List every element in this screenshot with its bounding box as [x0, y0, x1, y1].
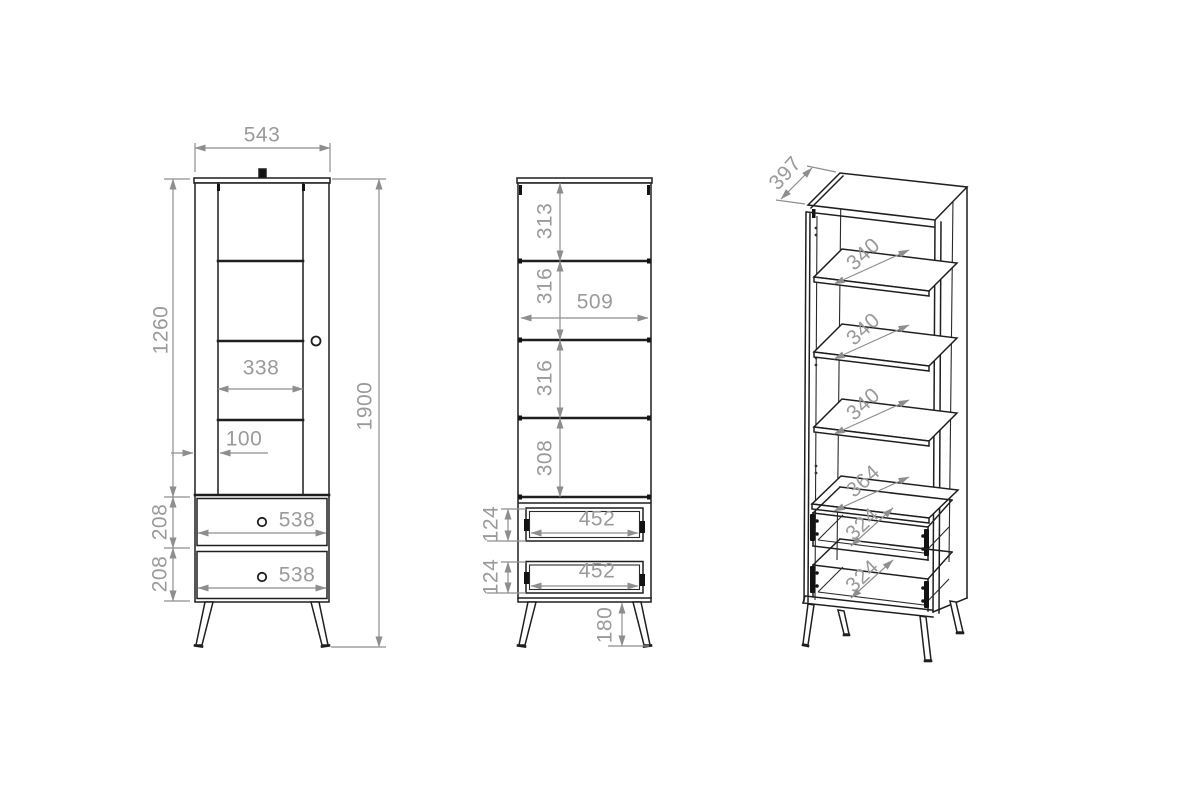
- wall-bracket: [259, 169, 266, 178]
- dim-label-124b: 124: [480, 559, 503, 596]
- dim-label-316a: 316: [534, 268, 557, 305]
- dim-label-208b: 208: [149, 556, 172, 593]
- dim-door-height: 1260: [150, 179, 190, 497]
- dim-label-313: 313: [534, 203, 557, 240]
- hinge-plate-left: [519, 185, 522, 195]
- dim-label-452a: 452: [579, 508, 616, 531]
- right-bottom-edge: [933, 598, 967, 612]
- leg-foot-left: [518, 646, 525, 647]
- drawer-slide-left: [810, 514, 815, 541]
- drawer-slide-right: [924, 529, 929, 556]
- drawer-slide-left: [810, 566, 815, 593]
- hinge-plate-right: [647, 185, 650, 195]
- bottom-front-edge-bottom: [803, 603, 933, 617]
- door-knob: [312, 337, 321, 346]
- dim-label-208a: 208: [149, 504, 172, 541]
- leg-front-right: [920, 616, 931, 660]
- drawer-open-2: [810, 539, 952, 611]
- drawer-slide-right: [924, 581, 929, 608]
- leg-front-left: [803, 604, 814, 645]
- hinge-mark-left: [217, 184, 220, 191]
- dim-label-124a: 124: [480, 506, 503, 543]
- drawer-knob-2: [258, 573, 266, 581]
- dim-label-538b: 538: [279, 564, 316, 587]
- back-right-corner: [949, 197, 953, 562]
- leg-front-right: [311, 602, 328, 645]
- shelf-2: [814, 324, 957, 371]
- top-face: [808, 173, 967, 220]
- dim-overall-height: 1900: [331, 179, 386, 647]
- dim-label-1260: 1260: [150, 306, 173, 355]
- leg-front-left: [196, 602, 213, 645]
- drawing-canvas: 543 1260 208 208 1900 338: [0, 0, 1187, 785]
- dim-overall-width: 543: [195, 124, 330, 172]
- shelf-3: [814, 399, 957, 446]
- leg-foot-right: [322, 646, 329, 647]
- technical-drawing-page: 543 1260 208 208 1900 338: [0, 0, 1187, 785]
- front-view: 543 1260 208 208 1900 338: [149, 124, 386, 647]
- hinge-mark-right: [302, 184, 305, 191]
- dim-label-538a: 538: [279, 509, 316, 532]
- leg-right: [633, 602, 650, 645]
- dim-label-316b: 316: [534, 360, 557, 397]
- dim-label-308: 308: [534, 440, 557, 477]
- leg-back-left: [838, 610, 849, 634]
- dim-label-543: 543: [244, 124, 281, 147]
- dim-label-509: 509: [577, 291, 614, 314]
- dim-label-1900: 1900: [354, 382, 377, 431]
- left-edge-inner: [808, 214, 810, 602]
- dim-drawer-heights: 208 208: [149, 497, 190, 601]
- dim-label-397: 397: [765, 152, 807, 195]
- dim-label-100: 100: [226, 428, 263, 451]
- leg-foot-left: [195, 646, 202, 647]
- perspective-view: 397 340 340 340 364 324 324: [765, 152, 967, 661]
- dim-label-180: 180: [594, 607, 617, 644]
- leg-back-right: [950, 601, 963, 632]
- dim-label-338: 338: [243, 357, 280, 380]
- dim-label-452b: 452: [579, 560, 616, 583]
- dim-label-324b: 324: [841, 555, 883, 597]
- inside-view: 313 316 316 308 509 124 452 124 452: [480, 178, 652, 647]
- drawer-knob-1: [258, 518, 266, 526]
- leg-foot-1: [803, 645, 808, 646]
- left-edge-outer: [804, 212, 806, 601]
- leg-left: [519, 602, 536, 645]
